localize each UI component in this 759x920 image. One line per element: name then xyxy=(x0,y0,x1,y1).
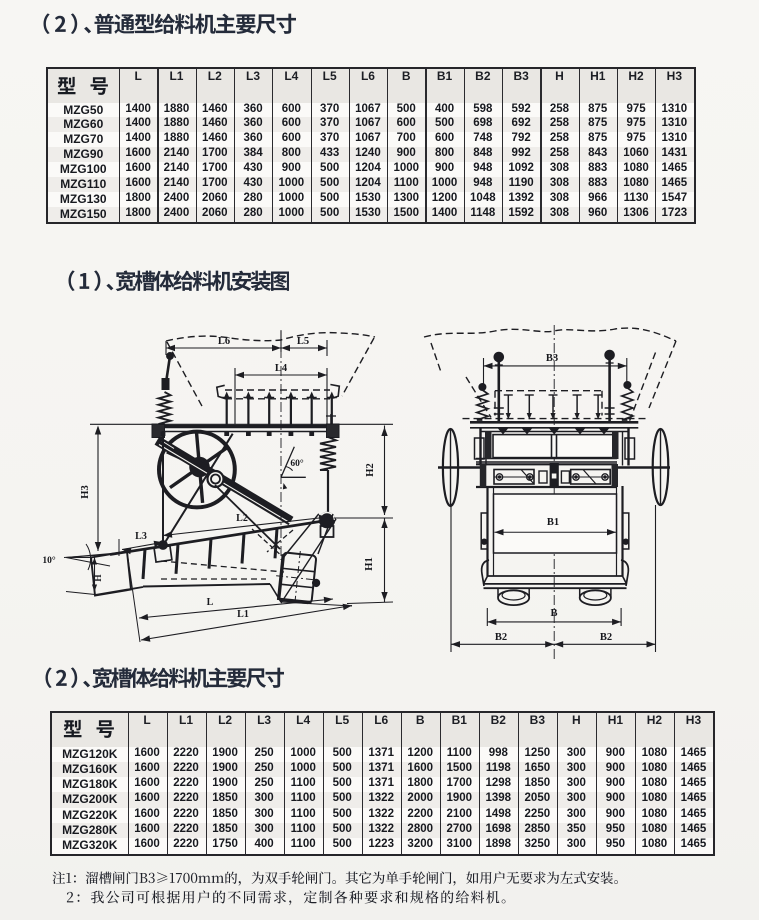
svg-text:H1: H1 xyxy=(364,557,375,570)
svg-text:L5: L5 xyxy=(297,336,309,347)
svg-text:B2: B2 xyxy=(495,632,507,643)
svg-text:L3: L3 xyxy=(135,531,147,542)
svg-text:B1: B1 xyxy=(547,517,559,528)
svg-text:60°: 60° xyxy=(290,458,304,469)
svg-text:L6: L6 xyxy=(218,336,230,347)
svg-text:L: L xyxy=(207,597,214,608)
svg-text:10°: 10° xyxy=(42,555,56,566)
svg-text:H: H xyxy=(94,574,104,582)
svg-text:L1: L1 xyxy=(237,609,249,620)
svg-text:B: B xyxy=(550,608,557,619)
svg-text:H3: H3 xyxy=(80,485,91,498)
svg-text:H2: H2 xyxy=(365,463,376,476)
svg-text:B3: B3 xyxy=(546,353,558,364)
svg-text:B2: B2 xyxy=(600,632,612,643)
svg-text:L2: L2 xyxy=(236,513,248,524)
